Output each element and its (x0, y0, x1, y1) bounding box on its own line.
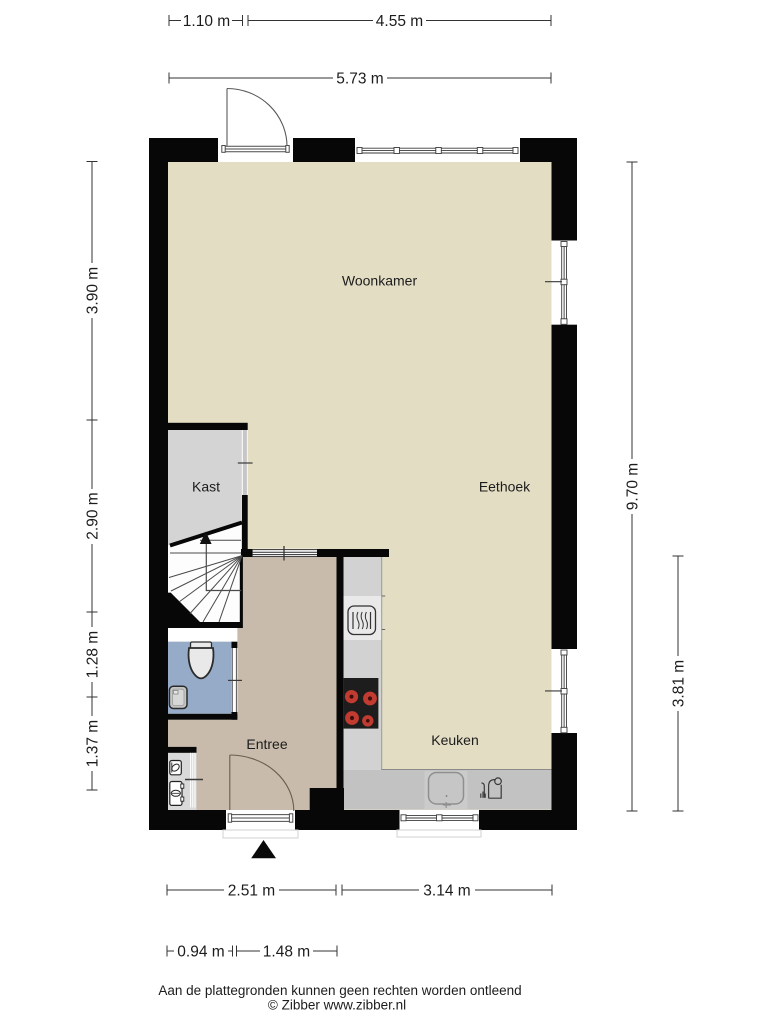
svg-text:© Zibber www.zibber.nl: © Zibber www.zibber.nl (268, 998, 406, 1013)
svg-text:0.94 m: 0.94 m (177, 944, 224, 961)
svg-text:4.55 m: 4.55 m (376, 13, 423, 30)
svg-text:5.73 m: 5.73 m (336, 71, 383, 88)
svg-text:3.14 m: 3.14 m (423, 883, 470, 900)
svg-text:9.70 m: 9.70 m (625, 463, 642, 510)
svg-text:1.48 m: 1.48 m (263, 944, 310, 961)
svg-text:Eethoek: Eethoek (479, 479, 531, 495)
svg-text:3.90 m: 3.90 m (85, 267, 102, 314)
svg-text:Kast: Kast (192, 479, 220, 495)
svg-text:1.28 m: 1.28 m (85, 631, 102, 678)
svg-text:2.90 m: 2.90 m (85, 492, 102, 539)
svg-text:3.81 m: 3.81 m (671, 660, 688, 707)
svg-text:2.51 m: 2.51 m (228, 883, 275, 900)
svg-text:Aan de plattegronden kunnen ge: Aan de plattegronden kunnen geen rechten… (158, 983, 521, 998)
svg-text:1.10 m: 1.10 m (183, 13, 230, 30)
svg-text:1.37 m: 1.37 m (85, 720, 102, 767)
svg-text:Entree: Entree (246, 736, 287, 752)
svg-text:Keuken: Keuken (431, 732, 478, 748)
svg-text:Woonkamer: Woonkamer (342, 273, 418, 289)
